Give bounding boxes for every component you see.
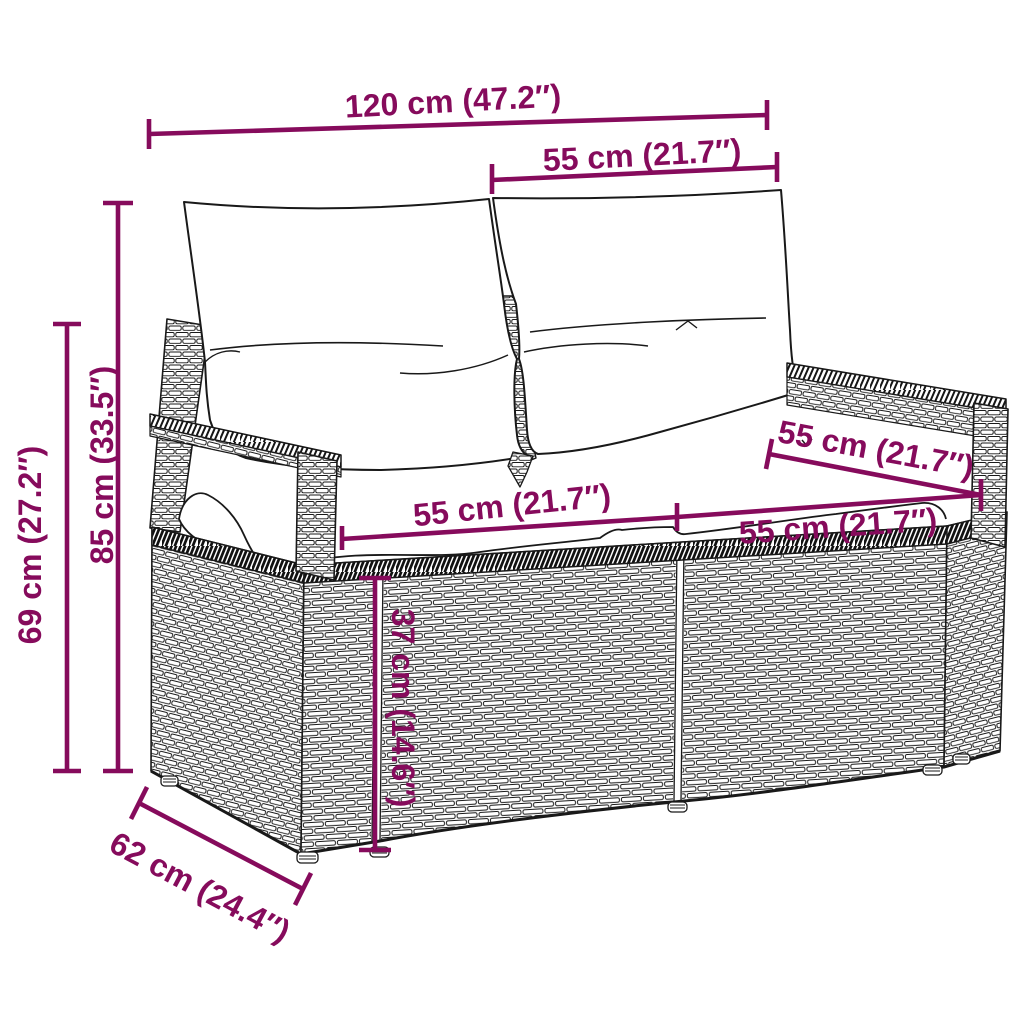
svg-text:120 cm (47.2″): 120 cm (47.2″) [344,77,562,124]
svg-text:69 cm (27.2″): 69 cm (27.2″) [12,446,48,645]
svg-text:37 cm (14.6″): 37 cm (14.6″) [385,609,421,808]
svg-text:85 cm (33.5″): 85 cm (33.5″) [84,366,120,565]
svg-text:62 cm (24.4″): 62 cm (24.4″) [104,825,296,950]
